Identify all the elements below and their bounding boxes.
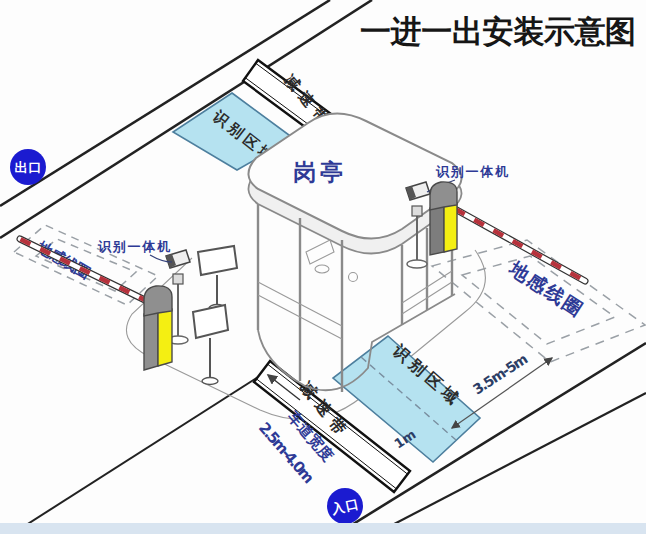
door-handle	[349, 273, 358, 282]
ground-loop-entry-label: 地感线圈	[505, 256, 587, 320]
bottom-strip	[0, 523, 646, 534]
installation-diagram: 减速带 识别区域 地感线圈 地感线圈 减速带 车道宽度 2.5m-4.0m 识别…	[0, 0, 646, 534]
barrier-entry-cap	[430, 182, 457, 210]
exit-badge-label: 出口	[15, 160, 42, 175]
diagram-svg: 减速带 识别区域 地感线圈 地感线圈 减速带 车道宽度 2.5m-4.0m 识别…	[0, 0, 646, 534]
barrier-exit-cap	[144, 286, 172, 316]
entry-badge: 入口	[327, 488, 363, 524]
loop-distance-label: 3.5m-5m	[470, 350, 531, 397]
barrier-entry-body	[444, 203, 457, 252]
barrier-exit-body	[158, 309, 172, 366]
camera-exit-label: 识别一体机	[97, 239, 171, 254]
barrier-entry	[430, 182, 585, 281]
page-title: 一进一出安装示意图	[360, 13, 638, 49]
exit-badge: 出口	[10, 149, 46, 185]
sign-board-2	[193, 305, 228, 385]
barrier-exit	[20, 239, 172, 370]
sign-board-1	[198, 246, 237, 312]
camera-entry-label: 识别一体机	[435, 164, 509, 179]
booth-label: 岗亭	[293, 159, 348, 185]
